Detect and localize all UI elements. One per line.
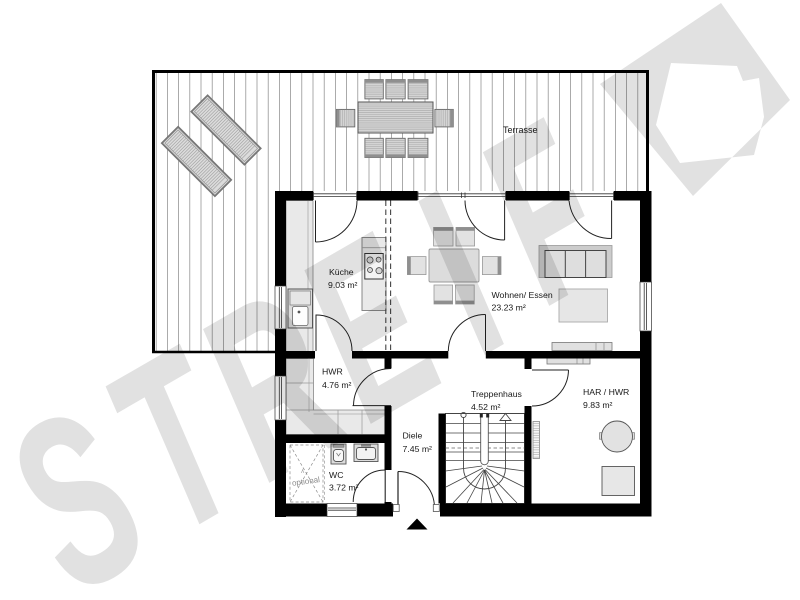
svg-text:9.83 m²: 9.83 m² — [583, 400, 613, 410]
svg-text:HAR / HWR: HAR / HWR — [583, 387, 629, 397]
svg-text:4.52 m²: 4.52 m² — [471, 402, 501, 412]
